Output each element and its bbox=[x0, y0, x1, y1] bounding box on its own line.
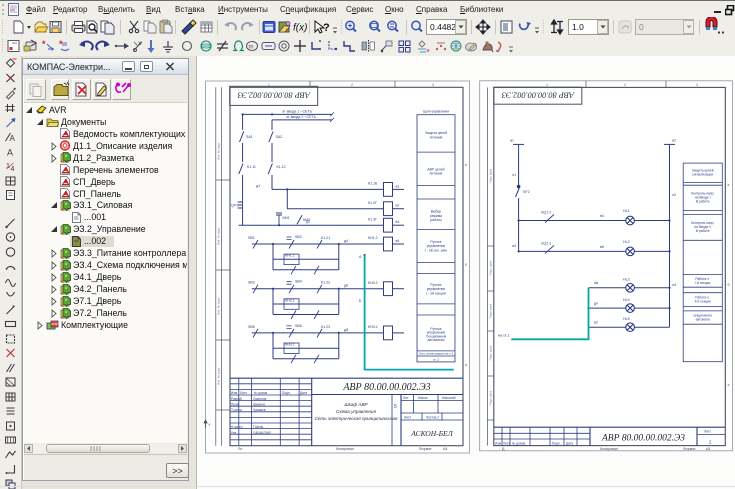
svg-text:Инв. № подл.: Инв. № подл. bbox=[217, 227, 221, 245]
svg-text:SB3: SB3 bbox=[248, 281, 255, 285]
svg-text:на сх.1: на сх.1 bbox=[498, 334, 510, 338]
svg-text:II-й секции: II-й секции bbox=[695, 300, 711, 304]
svg-text:x: x bbox=[138, 41, 141, 47]
svg-text:д6: д6 bbox=[344, 284, 348, 288]
svg-text:Ле: Ле bbox=[238, 447, 242, 451]
svg-text:А4: А4 bbox=[443, 447, 447, 451]
svg-text:SB4: SB4 bbox=[295, 280, 302, 284]
svg-text:Масса: Масса bbox=[418, 396, 428, 400]
svg-text:Шкаф АВР: Шкаф АВР bbox=[344, 402, 368, 407]
svg-text:К1.1Б: К1.1Б bbox=[368, 182, 378, 186]
svg-text:№ докум.: № докум. bbox=[512, 441, 526, 445]
svg-text:Y: Y bbox=[208, 422, 211, 427]
svg-text:SF2: SF2 bbox=[523, 190, 530, 194]
svg-text:Подп. дата: Подп. дата bbox=[489, 345, 493, 360]
svg-text:Формат: Формат bbox=[683, 447, 696, 451]
svg-text:Подп. дата: Подп. дата bbox=[489, 168, 493, 183]
svg-text:в4: в4 bbox=[396, 239, 400, 243]
svg-text:Лист: Лист bbox=[240, 391, 247, 395]
svg-text:в3: в3 bbox=[396, 220, 400, 224]
svg-text:автоматом: автоматом bbox=[428, 338, 446, 342]
svg-text:КН1.1: КН1.1 bbox=[285, 254, 295, 258]
svg-text:A: A bbox=[10, 134, 16, 143]
svg-text:в: в bbox=[728, 183, 730, 187]
svg-text:д2: д2 bbox=[306, 220, 310, 224]
svg-text:2: 2 bbox=[624, 83, 626, 87]
svg-text:Копировал: Копировал bbox=[336, 447, 354, 451]
svg-text:АВР 80.00.00.002.Э3: АВР 80.00.00.002.Э3 bbox=[601, 433, 685, 443]
svg-text:а1: а1 bbox=[510, 139, 514, 143]
svg-text:автомата: автомата bbox=[696, 318, 710, 322]
svg-text:*: * bbox=[42, 39, 46, 49]
svg-text:К1.23: К1.23 bbox=[321, 325, 330, 329]
svg-text:КН0.2: КН0.2 bbox=[368, 281, 378, 285]
svg-text:HL5: HL5 bbox=[623, 317, 630, 321]
svg-text:В работе: В работе bbox=[696, 229, 710, 233]
svg-text:HL4: HL4 bbox=[623, 298, 630, 302]
svg-text:1.0: 1.0 bbox=[572, 22, 584, 32]
svg-text:2: 2 bbox=[351, 83, 353, 87]
svg-text:I - ой секции: I - ой секции bbox=[426, 291, 446, 295]
svg-text:от ввода 1 ~СЕТЬ: от ввода 1 ~СЕТЬ bbox=[282, 110, 313, 114]
svg-text:КН1.2: КН1.2 bbox=[368, 236, 378, 240]
svg-text:3: 3 bbox=[696, 83, 698, 87]
svg-text:Т.контр.: Т.контр. bbox=[231, 408, 243, 412]
svg-text:д4: д4 bbox=[344, 239, 348, 243]
svg-text:Смирнов: Смирнов bbox=[253, 397, 267, 401]
svg-text:дч: дч bbox=[594, 301, 598, 305]
svg-text:Пров.: Пров. bbox=[231, 403, 240, 407]
svg-text:Цепи управления: Цепи управления bbox=[423, 110, 449, 114]
svg-text:Листов 2: Листов 2 bbox=[426, 416, 439, 420]
svg-text:0.4482: 0.4482 bbox=[430, 22, 456, 32]
svg-text:в4: в4 bbox=[600, 214, 604, 218]
svg-text:сх. 2: сх. 2 bbox=[433, 357, 439, 361]
svg-text:КН0.2: КН0.2 bbox=[368, 325, 378, 329]
svg-text:АВР 80.00.00.002.Э3: АВР 80.00.00.002.Э3 bbox=[342, 382, 430, 393]
svg-text:Дата: Дата bbox=[566, 441, 573, 445]
svg-text:Лист: Лист bbox=[503, 441, 510, 445]
svg-text:Сеть электрическая принципиаль: Сеть электрическая принципиальная bbox=[315, 416, 398, 421]
svg-text:А4: А4 bbox=[706, 447, 710, 451]
svg-text:Подп. дата: Подп. дата bbox=[489, 390, 493, 405]
svg-text:?: ? bbox=[323, 22, 330, 34]
svg-text:5: 5 bbox=[394, 404, 397, 410]
svg-text:К1.3Г: К1.3Г bbox=[368, 217, 377, 221]
svg-text:АВР 80.00.00.002.Э3: АВР 80.00.00.002.Э3 bbox=[502, 91, 576, 100]
svg-text:питания: питания bbox=[430, 135, 443, 139]
svg-text:1: 1 bbox=[546, 83, 548, 87]
svg-text:Подп.: Подп. bbox=[552, 441, 561, 445]
svg-text:SB6: SB6 bbox=[295, 324, 302, 328]
svg-text:питания: питания bbox=[430, 172, 443, 176]
svg-text:HL3: HL3 bbox=[623, 278, 630, 282]
svg-text:Разраб.: Разраб. bbox=[231, 397, 243, 401]
svg-text:Подп.: Подп. bbox=[282, 391, 291, 395]
svg-text:Ав: Ав bbox=[594, 281, 598, 285]
svg-text:Инв. № подл.: Инв. № подл. bbox=[217, 297, 221, 315]
svg-text:АВР 80.00.00.002.Э3: АВР 80.00.00.002.Э3 bbox=[237, 91, 311, 100]
svg-text:m: m bbox=[249, 45, 254, 51]
svg-text:Н.контр.: Н.контр. bbox=[231, 425, 243, 429]
svg-text:а: а bbox=[728, 383, 730, 387]
svg-text:Инв. № подл.: Инв. № подл. bbox=[217, 142, 221, 160]
svg-text:QF1: QF1 bbox=[231, 204, 238, 208]
svg-text:САБАШТАЙ: САБАШТАЙ bbox=[253, 431, 271, 435]
svg-text:Лит.: Лит. bbox=[403, 396, 409, 400]
svg-text:в1: в1 bbox=[396, 184, 400, 188]
svg-text:Подп. дата: Подп. дата bbox=[489, 260, 493, 275]
svg-text:A: A bbox=[7, 148, 13, 158]
svg-text:К1.2Г: К1.2Г bbox=[368, 201, 377, 205]
svg-text:SQ2.2: SQ2.2 bbox=[541, 241, 551, 245]
svg-text:КН2.1: КН2.1 bbox=[285, 298, 295, 302]
svg-text:а: а bbox=[465, 363, 467, 367]
svg-text:Копировал: Копировал bbox=[600, 447, 618, 451]
svg-text:К1.11: К1.11 bbox=[247, 165, 256, 169]
svg-text:SA2: SA2 bbox=[276, 135, 283, 139]
svg-text:д1: д1 bbox=[256, 184, 260, 188]
svg-text:К1.22: К1.22 bbox=[321, 281, 330, 285]
svg-text:л2: л2 bbox=[672, 193, 676, 197]
svg-text:К1.12: К1.12 bbox=[277, 165, 286, 169]
svg-text:Лист: Лист bbox=[404, 416, 411, 420]
svg-text:4: 4 bbox=[11, 166, 15, 173]
svg-text:Изм: Изм bbox=[231, 391, 237, 395]
svg-text:SB2: SB2 bbox=[295, 235, 302, 239]
svg-text:Г.Шень: Г.Шень bbox=[253, 425, 264, 429]
svg-text:сигнализации: сигнализации bbox=[692, 173, 713, 177]
svg-text:Инв. № подл.: Инв. № подл. bbox=[217, 367, 221, 385]
svg-text:л1: л1 bbox=[512, 173, 516, 177]
svg-text:1: 1 bbox=[268, 83, 270, 87]
svg-text:Масштаб: Масштаб bbox=[442, 396, 456, 400]
svg-text:№ докум.: № докум. bbox=[254, 391, 268, 395]
svg-text:а3: а3 bbox=[512, 244, 516, 248]
svg-text:от ввода 2 ~СЕТЬ: от ввода 2 ~СЕТЬ bbox=[286, 115, 317, 119]
svg-text:I - ой сек. шин: I - ой сек. шин bbox=[425, 248, 447, 252]
svg-text:Дата: Дата bbox=[300, 391, 307, 395]
svg-text:работы: работы bbox=[430, 218, 442, 222]
svg-text:в2: в2 bbox=[396, 204, 400, 208]
svg-text:В работе: В работе bbox=[696, 200, 710, 204]
svg-text:3: 3 bbox=[432, 83, 434, 87]
svg-text:Шумило: Шумило bbox=[253, 403, 265, 407]
svg-text:в2: в2 bbox=[594, 320, 598, 324]
svg-text:в: в bbox=[465, 163, 467, 167]
svg-text:0: 0 bbox=[639, 22, 644, 32]
svg-text:f(x): f(x) bbox=[293, 23, 307, 34]
svg-text:КМ1: КМ1 bbox=[283, 216, 290, 220]
svg-text:Утв.: Утв. bbox=[231, 431, 237, 435]
svg-text:Чумаков: Чумаков bbox=[253, 408, 266, 412]
svg-text:а2: а2 bbox=[672, 139, 676, 143]
svg-text:КН3.1: КН3.1 bbox=[285, 343, 295, 347]
svg-text:SA1: SA1 bbox=[246, 135, 253, 139]
svg-text:К1.21: К1.21 bbox=[321, 236, 330, 240]
svg-text:б: б bbox=[728, 283, 730, 287]
svg-text:Лист: Лист bbox=[704, 430, 711, 434]
svg-text:SB5: SB5 bbox=[248, 325, 255, 329]
svg-text:АСКОН-БЕЛ: АСКОН-БЕЛ bbox=[410, 429, 453, 438]
svg-text:I-й секции: I-й секции bbox=[695, 281, 710, 285]
svg-text:л4: л4 bbox=[672, 283, 676, 287]
svg-text:б: б bbox=[465, 263, 467, 267]
svg-text:Подп. дата: Подп. дата bbox=[489, 303, 493, 318]
svg-text:Формат: Формат bbox=[419, 447, 432, 451]
svg-text:SQ1.2: SQ1.2 bbox=[541, 211, 551, 215]
svg-text:в6: в6 bbox=[600, 245, 604, 249]
svg-text:SB1: SB1 bbox=[248, 236, 255, 240]
svg-text:Схема управления: Схема управления bbox=[336, 409, 376, 414]
svg-text:HL1: HL1 bbox=[623, 209, 630, 213]
svg-text:Сеть сигнализации на л.2: Сеть сигнализации на л.2 bbox=[419, 352, 454, 356]
svg-text:HL2: HL2 bbox=[623, 240, 630, 244]
svg-text:д8: д8 bbox=[344, 328, 348, 332]
svg-text:Изм: Изм bbox=[495, 441, 501, 445]
